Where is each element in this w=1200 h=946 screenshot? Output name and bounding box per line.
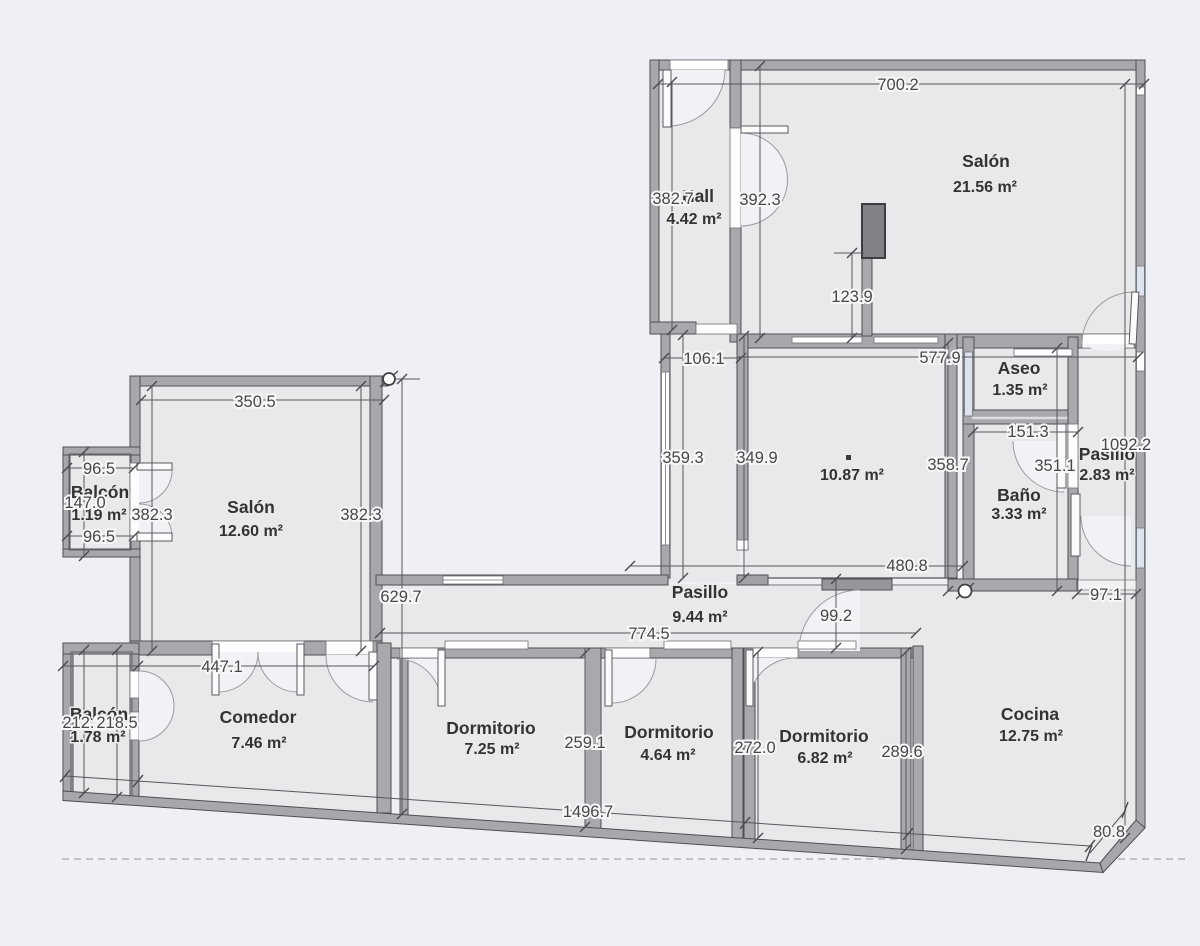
svg-text:359.3: 359.3 [662,449,703,467]
svg-text:700.2: 700.2 [877,76,918,94]
svg-text:97.1: 97.1 [1090,586,1122,604]
svg-text:Salón: Salón [962,151,1010,171]
svg-text:7.25 m²: 7.25 m² [464,741,519,758]
svg-text:392.3: 392.3 [739,191,780,209]
svg-text:6.82 m²: 6.82 m² [797,750,852,767]
svg-text:382.3: 382.3 [131,506,172,524]
svg-text:Comedor: Comedor [220,707,297,727]
svg-text:577.9: 577.9 [919,349,960,367]
svg-text:Dormitorio: Dormitorio [624,722,713,742]
svg-text:272.0: 272.0 [734,739,775,757]
svg-text:80.8: 80.8 [1093,823,1125,841]
svg-text:4.64 m²: 4.64 m² [640,747,695,764]
svg-text:96.5: 96.5 [83,528,115,546]
svg-text:151.3: 151.3 [1007,423,1048,441]
svg-text:12.75 m²: 12.75 m² [999,728,1063,745]
svg-text:10.87 m²: 10.87 m² [820,467,884,484]
svg-text:7.46 m²: 7.46 m² [231,735,286,752]
svg-text:147.0: 147.0 [64,494,105,512]
svg-text:12.60 m²: 12.60 m² [219,523,283,540]
svg-text:21.56 m²: 21.56 m² [953,179,1017,196]
svg-text:358.7: 358.7 [927,456,968,474]
svg-text:Dormitorio: Dormitorio [446,718,535,738]
svg-text:259.1: 259.1 [564,734,605,752]
svg-text:480.8: 480.8 [886,557,927,575]
svg-text:4.42 m²: 4.42 m² [666,211,721,228]
svg-text:629.7: 629.7 [380,588,421,606]
svg-text:Aseo: Aseo [998,358,1041,378]
svg-text:1.35 m²: 1.35 m² [992,382,1047,399]
svg-text:Dormitorio: Dormitorio [779,726,868,746]
svg-text:382.3: 382.3 [340,506,381,524]
svg-text:Cocina: Cocina [1001,704,1060,724]
svg-text:96.5: 96.5 [83,460,115,478]
svg-text:447.1: 447.1 [201,658,242,676]
svg-text:289.6: 289.6 [881,743,922,761]
svg-text:99.2: 99.2 [820,607,852,625]
svg-text:3.33 m²: 3.33 m² [991,506,1046,523]
svg-text:351.1: 351.1 [1034,457,1075,475]
svg-text:382.7: 382.7 [652,190,693,208]
svg-text:9.44 m²: 9.44 m² [672,609,727,626]
svg-text:1092.2: 1092.2 [1101,436,1151,454]
svg-text:106.1: 106.1 [683,350,724,368]
svg-text:Pasillo: Pasillo [672,582,728,602]
svg-text:Salón: Salón [227,497,275,517]
svg-text:350.5: 350.5 [234,393,275,411]
svg-text:218.5: 218.5 [96,714,137,732]
svg-text:123.9: 123.9 [831,288,872,306]
svg-text:774.5: 774.5 [628,625,669,643]
svg-text:Baño: Baño [997,485,1041,505]
svg-text:1496.7: 1496.7 [563,803,613,821]
svg-text:349.9: 349.9 [736,449,777,467]
svg-text:2.83 m²: 2.83 m² [1079,467,1134,484]
